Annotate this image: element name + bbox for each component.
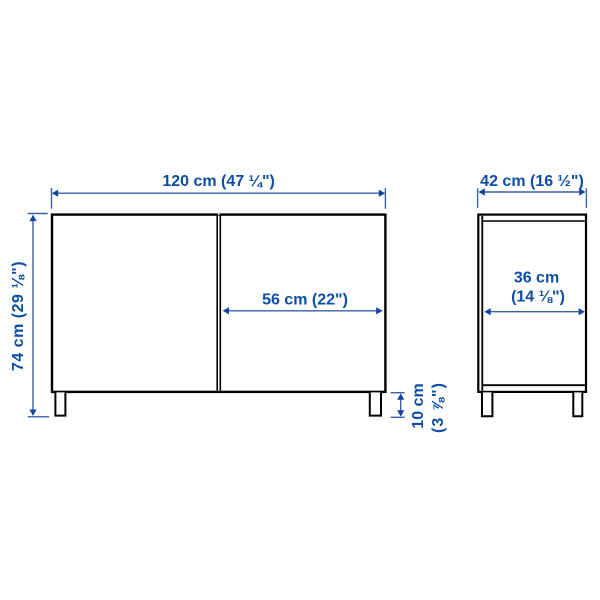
svg-text:(14 ⅛"): (14 ⅛") bbox=[511, 289, 565, 306]
svg-text:36 cm: 36 cm bbox=[514, 270, 559, 287]
svg-text:56 cm (22"): 56 cm (22") bbox=[262, 292, 348, 309]
svg-text:74 cm (29 ⅛"): 74 cm (29 ⅛") bbox=[10, 261, 27, 371]
svg-text:10 cm: 10 cm bbox=[410, 383, 427, 428]
svg-text:(3 ⅞"): (3 ⅞") bbox=[430, 382, 447, 433]
svg-text:42 cm (16 ½"): 42 cm (16 ½") bbox=[480, 173, 584, 190]
svg-text:120 cm (47 ¼"): 120 cm (47 ¼") bbox=[162, 173, 275, 190]
